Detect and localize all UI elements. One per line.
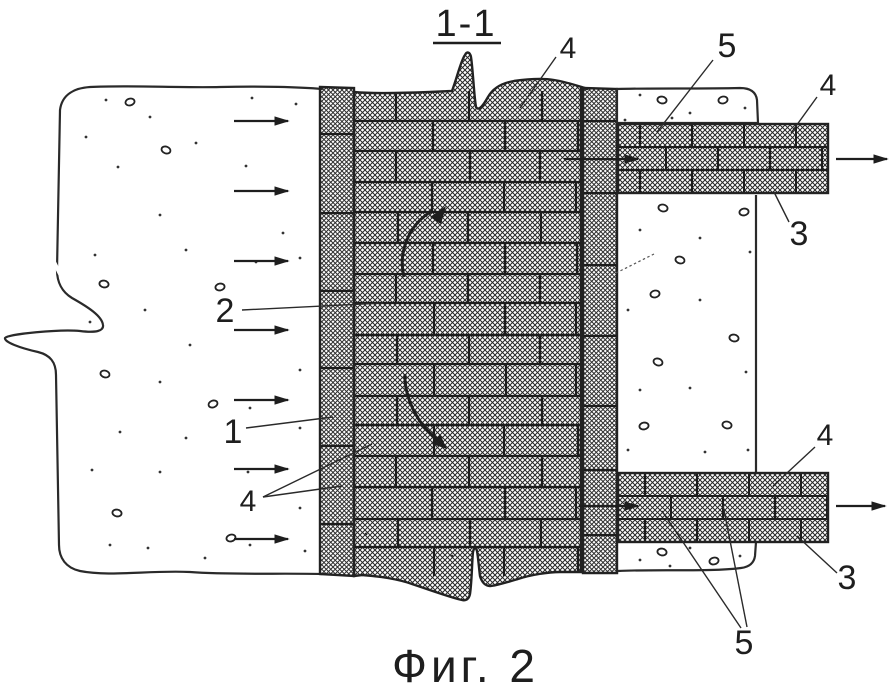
svg-text:1: 1 [224, 413, 243, 451]
svg-text:3: 3 [790, 215, 809, 253]
svg-text:5: 5 [735, 624, 754, 662]
svg-text:4: 4 [240, 485, 257, 518]
svg-text:5: 5 [718, 27, 737, 65]
svg-text:2: 2 [216, 292, 235, 330]
svg-text:3: 3 [838, 559, 857, 597]
svg-text:4: 4 [560, 32, 577, 65]
svg-text:4: 4 [817, 419, 834, 452]
svg-text:4: 4 [820, 69, 837, 102]
svg-text:1-1: 1-1 [436, 3, 497, 45]
svg-text:Фиг. 2: Фиг. 2 [392, 640, 539, 687]
